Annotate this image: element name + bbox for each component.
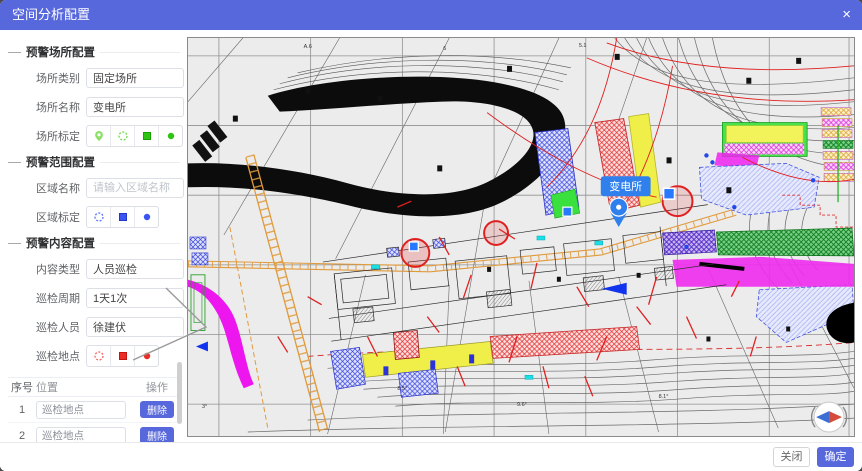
section-title: 预警内容配置	[26, 235, 95, 251]
svg-text:5.1: 5.1	[579, 43, 587, 49]
section-divider	[100, 162, 180, 163]
section-range-config: 预警范围配置	[0, 154, 187, 170]
circle-marker-icon[interactable]	[110, 126, 134, 146]
area-name-input[interactable]	[86, 178, 184, 198]
dialog-header: 空间分析配置 ×	[0, 0, 862, 30]
col-action: 操作	[136, 379, 178, 395]
spatial-analysis-dialog: 空间分析配置 × 预警场所配置 场所类别 场所名称 场所标定	[0, 0, 862, 471]
area-name-label: 区域名称	[36, 180, 86, 196]
site-map: 变电所 A.665.1 8.5°9.6°8.1°3°	[187, 37, 855, 437]
field-place-name: 场所名称	[0, 96, 187, 118]
dot-marker-icon[interactable]	[158, 126, 182, 146]
delete-button[interactable]: 删除	[140, 401, 174, 418]
row-location-input[interactable]	[36, 401, 126, 419]
substation-tooltip-label: 变电所	[609, 179, 642, 193]
svg-text:8.5°: 8.5°	[397, 386, 407, 392]
field-place-type: 场所类别	[0, 67, 187, 89]
patrol-point-label: 巡检地点	[36, 348, 86, 364]
col-index: 序号	[8, 379, 36, 395]
row-index: 2	[8, 430, 36, 442]
close-icon[interactable]: ×	[842, 0, 851, 30]
field-content-type: 内容类型	[0, 258, 187, 280]
place-type-input[interactable]	[86, 68, 184, 88]
field-area-mark: 区域标定	[0, 206, 187, 228]
circle-marker-icon[interactable]	[87, 346, 110, 366]
table-header: 序号 位置 操作	[8, 377, 178, 397]
field-patrol-person: 巡检人员	[0, 316, 187, 338]
place-mark-label: 场所标定	[36, 128, 86, 144]
dot-marker-icon[interactable]	[134, 346, 158, 366]
svg-text:6: 6	[443, 46, 446, 52]
row-index: 1	[8, 404, 36, 416]
square-marker-icon[interactable]	[134, 126, 158, 146]
dialog-footer: 关闭 确定	[0, 442, 862, 471]
dot-marker-icon[interactable]	[134, 207, 158, 227]
zone-blue-band2	[398, 369, 438, 397]
patrol-person-label: 巡检人员	[36, 319, 86, 335]
patrol-cycle-label: 巡检周期	[36, 290, 86, 306]
place-mark-tools	[86, 125, 183, 147]
patrol-person-input[interactable]	[86, 317, 184, 337]
patrol-point-tools	[86, 345, 159, 367]
patrol-point-marker[interactable]	[409, 242, 418, 251]
section-title: 预警范围配置	[26, 154, 95, 170]
svg-text:A.6: A.6	[304, 44, 312, 50]
content-type-input[interactable]	[86, 259, 184, 279]
confirm-button[interactable]: 确定	[817, 447, 854, 467]
section-dash	[8, 243, 21, 244]
place-name-input[interactable]	[86, 97, 184, 117]
col-location: 位置	[36, 379, 136, 395]
place-name-label: 场所名称	[36, 99, 86, 115]
patrol-point-marker[interactable]	[664, 188, 675, 199]
section-place-config: 预警场所配置	[0, 44, 187, 60]
zone-purple-hatched	[663, 230, 717, 255]
vertex-marker[interactable]	[563, 207, 572, 216]
svg-text:9.6°: 9.6°	[517, 402, 527, 408]
svg-text:8.1°: 8.1°	[659, 394, 669, 400]
circle-marker-icon[interactable]	[87, 207, 110, 227]
area-mark-tools	[86, 206, 159, 228]
zone-darkgreen-hatched	[716, 228, 854, 256]
square-marker-icon[interactable]	[110, 346, 134, 366]
zone-magenta-strip	[724, 143, 804, 154]
section-title: 预警场所配置	[26, 44, 95, 60]
section-divider	[100, 243, 180, 244]
site-map-canvas[interactable]: 变电所 A.665.1 8.5°9.6°8.1°3°	[188, 38, 854, 436]
section-dash	[8, 162, 21, 163]
area-mark-label: 区域标定	[36, 209, 86, 225]
field-area-name: 区域名称	[0, 177, 187, 199]
config-form-panel: 预警场所配置 场所类别 场所名称 场所标定	[0, 30, 187, 471]
svg-text:3°: 3°	[202, 404, 207, 410]
pin-marker-icon[interactable]	[87, 126, 110, 146]
field-place-mark: 场所标定	[0, 125, 187, 147]
square-marker-icon[interactable]	[110, 207, 134, 227]
field-patrol-point: 巡检地点	[0, 345, 187, 367]
zone-crimson-square	[393, 331, 419, 360]
patrol-cycle-input[interactable]	[86, 288, 184, 308]
dialog-title: 空间分析配置	[0, 0, 862, 30]
zone-blue-band	[331, 347, 366, 389]
section-dash	[8, 52, 21, 53]
table-row: 1 删除	[8, 397, 178, 423]
close-button[interactable]: 关闭	[773, 447, 810, 467]
place-type-label: 场所类别	[36, 70, 86, 86]
table-scrollbar[interactable]	[177, 362, 182, 424]
section-content-config: 预警内容配置	[0, 235, 187, 251]
field-patrol-cycle: 巡检周期	[0, 287, 187, 309]
zone-yellow-inner	[726, 126, 803, 143]
section-divider	[100, 52, 180, 53]
content-type-label: 内容类型	[36, 261, 86, 277]
